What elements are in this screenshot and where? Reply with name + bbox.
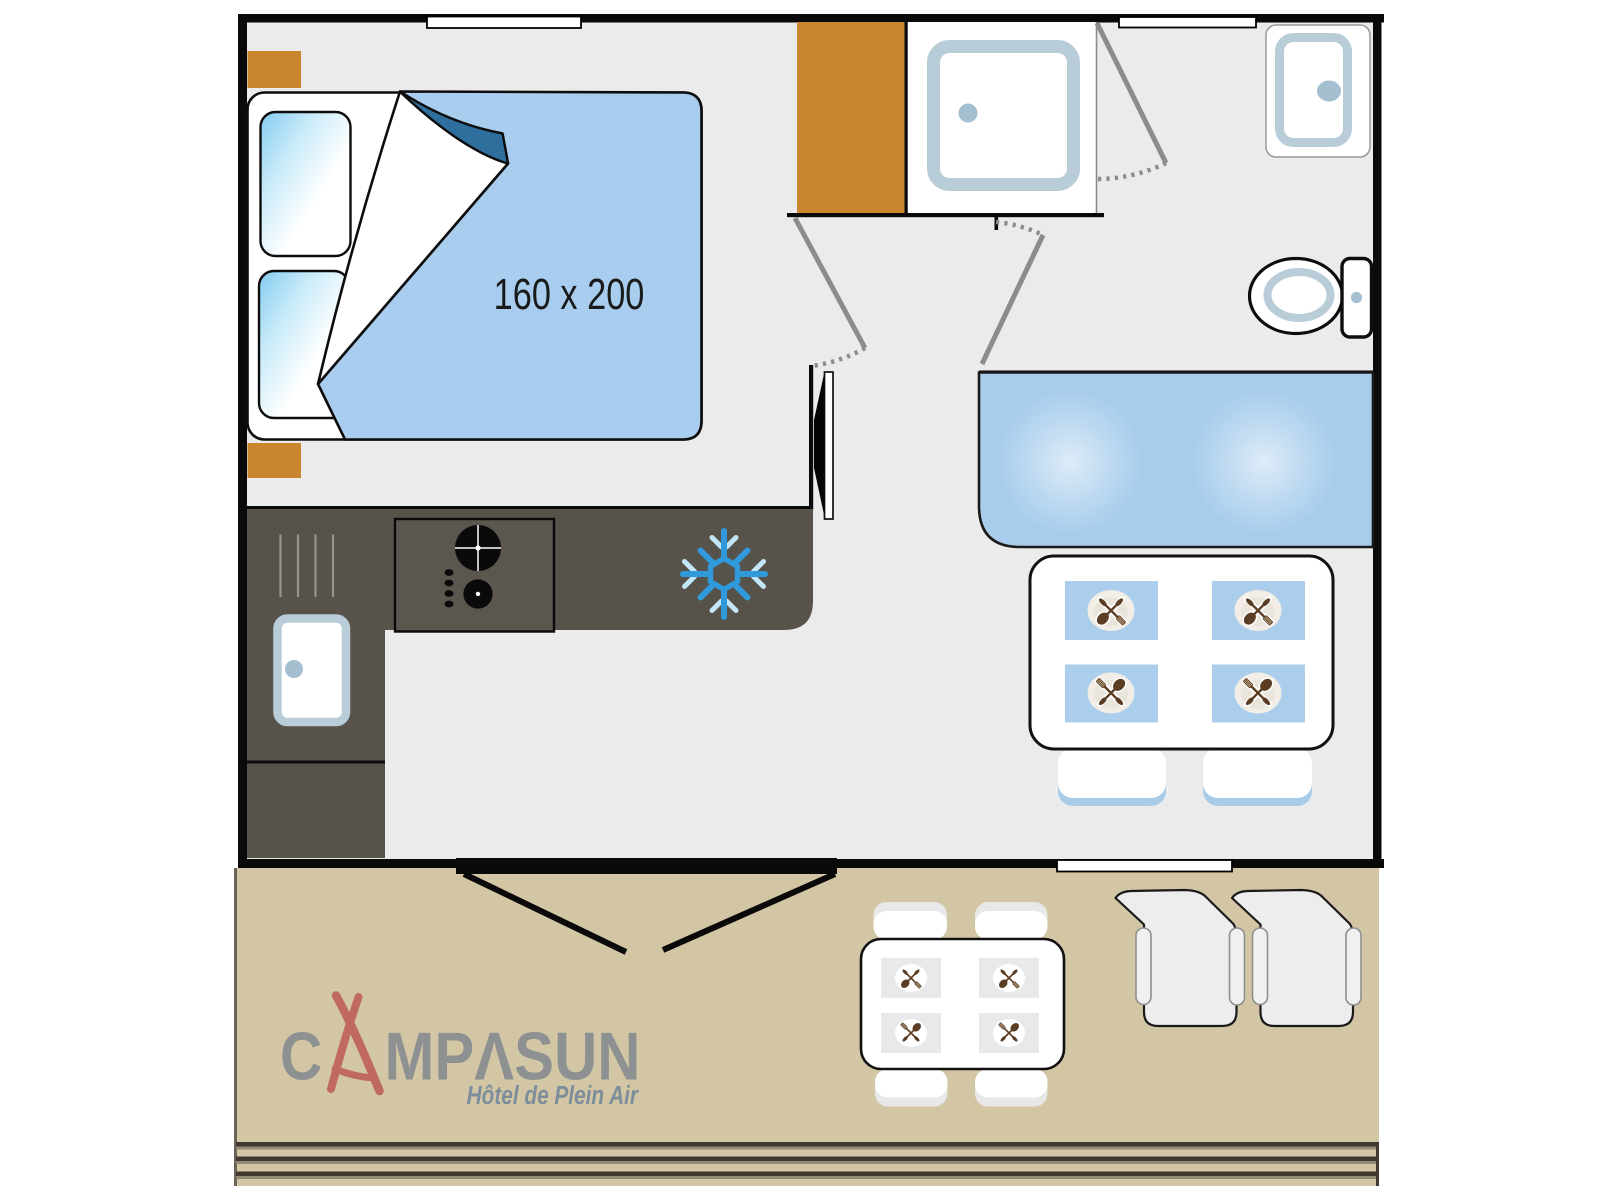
svg-text:Hôtel de Plein Air: Hôtel de Plein Air [467, 1081, 640, 1110]
svg-text:C: C [280, 1019, 322, 1094]
svg-text:160 x 200: 160 x 200 [494, 270, 645, 319]
